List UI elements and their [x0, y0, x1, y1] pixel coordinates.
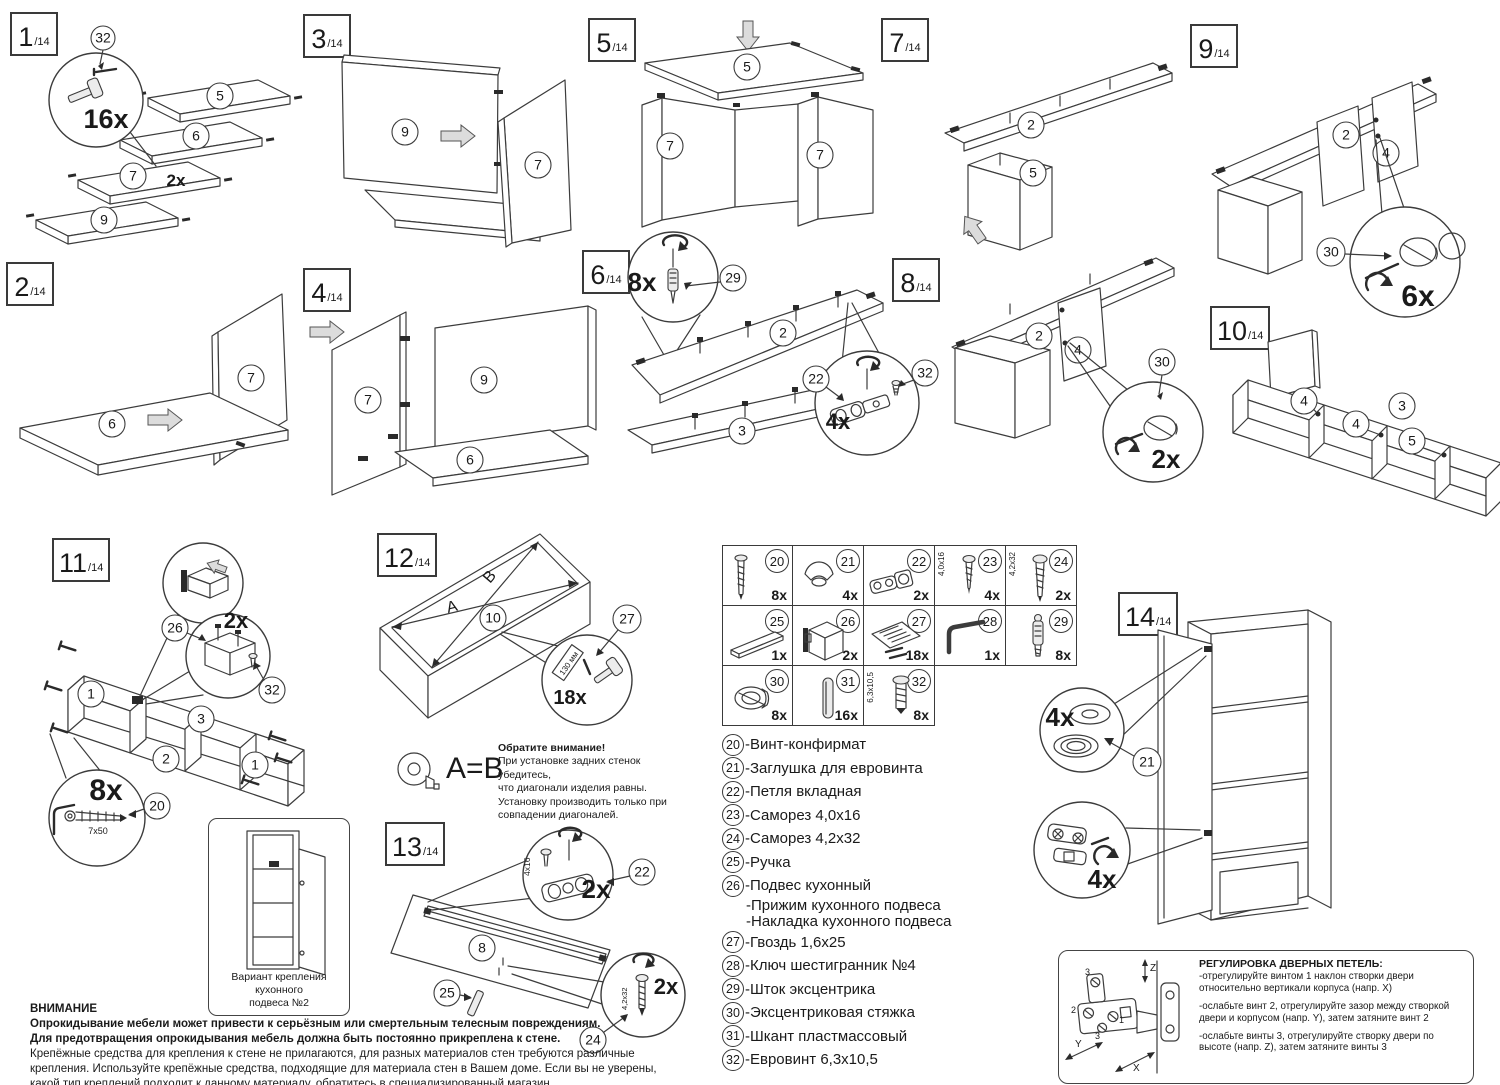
- parts-cell-25: 25 1x: [722, 605, 793, 666]
- screw-size-label: 4x16: [522, 857, 532, 876]
- axis-z-label: Z: [1150, 963, 1156, 974]
- callout-29: 29: [720, 265, 746, 291]
- screw-3-label: 3: [1085, 967, 1090, 977]
- svg-text:3: 3: [1398, 398, 1406, 414]
- legend-item: 21-Заглушка для евровинта: [722, 757, 1052, 781]
- quantity-label: 2x: [654, 974, 679, 999]
- part-qty: 8x: [771, 587, 787, 603]
- hinge-adjustment-title: РЕГУЛИРОВКА ДВЕРНЫХ ПЕТЕЛЬ:: [1199, 958, 1465, 971]
- part-circle-2: 2: [770, 320, 796, 346]
- step-4-drawing: 7 9 6: [300, 260, 585, 505]
- svg-text:3: 3: [738, 423, 746, 439]
- callout-32: 32: [259, 677, 285, 703]
- part-circle-7b: 7: [807, 142, 833, 168]
- quantity-label: 2x: [224, 608, 249, 633]
- part-circle-1b: 1: [242, 752, 268, 778]
- direction-arrow: [310, 321, 344, 343]
- door: [1158, 630, 1212, 924]
- svg-text:1: 1: [87, 686, 95, 702]
- panel-9: [342, 55, 503, 193]
- part-circle-7: 7: [525, 152, 551, 178]
- callout-21: 21: [1133, 748, 1161, 776]
- svg-text:27: 27: [619, 611, 635, 627]
- legend-item: 26-Подвес кухонный: [722, 874, 1052, 898]
- warning-title: ВНИМАНИЕ: [30, 1002, 670, 1017]
- legend-subitem: -Прижим кухонного подвеса: [746, 898, 1052, 915]
- svg-text:5: 5: [1408, 433, 1416, 449]
- svg-text:9: 9: [401, 124, 409, 140]
- step-12-drawing: A B 10 130 мм 18x 27: [370, 528, 670, 743]
- box: [955, 336, 1050, 438]
- step-2-drawing: 6 7: [0, 258, 300, 503]
- axis-x-label: X: [1133, 1063, 1140, 1074]
- panel-9: [435, 306, 596, 448]
- screw-size-label: 7x50: [88, 826, 108, 836]
- part-number-badge: 20: [765, 549, 789, 573]
- svg-text:10: 10: [485, 610, 501, 626]
- quantity-label: 4x: [1088, 864, 1117, 894]
- legend-item: 32-Евровинт 6,3х10,5: [722, 1048, 1052, 1072]
- legend-item: 25-Ручка: [722, 851, 1052, 875]
- part-circle-9: 9: [91, 207, 117, 233]
- panel-2: [945, 63, 1172, 151]
- leaning-panel: [1268, 330, 1320, 398]
- svg-text:2: 2: [162, 751, 170, 767]
- svg-text:30: 30: [1154, 354, 1170, 370]
- variant-cabinet-drawing: [209, 825, 347, 975]
- svg-text:2: 2: [1342, 127, 1350, 143]
- svg-text:9: 9: [100, 212, 108, 228]
- svg-text:2: 2: [1035, 328, 1043, 344]
- part-circle-4a: 4: [1291, 388, 1317, 414]
- svg-text:9: 9: [480, 372, 488, 388]
- direction-arrow: [737, 21, 759, 51]
- part-circle-5: 5: [734, 54, 760, 80]
- parts-legend: 20-Винт-конфирмат 21-Заглушка для еврови…: [722, 733, 1052, 1072]
- screw-1-label: 1: [1119, 1015, 1124, 1025]
- screw-3-label: 3: [1095, 1031, 1100, 1041]
- svg-text:22: 22: [634, 864, 650, 880]
- quantity-label: 8x: [89, 774, 123, 807]
- parts-cell-26: 26 2x: [792, 605, 864, 666]
- svg-text:21: 21: [1139, 754, 1155, 770]
- step-3-drawing: 9 7: [295, 12, 580, 262]
- part-circle-6: 6: [99, 411, 125, 437]
- callout-27: 27: [613, 605, 641, 633]
- part-circle-5: 5: [1020, 160, 1046, 186]
- step-10-drawing: 4 4 3 5: [1200, 302, 1500, 535]
- svg-text:32: 32: [264, 682, 280, 698]
- parts-cell-27: 27 18x: [863, 605, 935, 666]
- quantity-label: 4x: [826, 409, 851, 434]
- tape-measure-icon: [393, 748, 443, 794]
- callout-22: 22: [629, 859, 655, 885]
- part-circle-10: 10: [480, 605, 506, 631]
- svg-text:26: 26: [167, 620, 183, 636]
- part-circle-2: 2: [153, 746, 179, 772]
- part-circle-3: 3: [729, 418, 755, 444]
- svg-text:7: 7: [364, 392, 372, 408]
- parts-cell-31: 31 16x: [792, 665, 864, 726]
- svg-text:2: 2: [779, 325, 787, 341]
- hinge-icon: [868, 552, 916, 604]
- panel-6: [395, 430, 588, 486]
- callout-30: 30: [1149, 349, 1175, 375]
- confirmat-screw-glyph: [59, 642, 77, 655]
- step-1-drawing: 16x 32 5 6 7 2x 9: [8, 14, 300, 254]
- quantity-label: 2x: [582, 874, 611, 904]
- parts-cell-30: 30 8x: [722, 665, 793, 726]
- part-circle-5: 5: [1399, 428, 1425, 454]
- svg-text:20: 20: [149, 798, 165, 814]
- part-circle-2: 2: [1026, 323, 1052, 349]
- step-14-drawing: 4x 21 4x: [1040, 588, 1400, 938]
- part-circle-8: 8: [469, 935, 495, 961]
- euro-cap-icon: [797, 552, 841, 602]
- quantity-label: 8x: [628, 267, 657, 297]
- svg-text:1: 1: [251, 757, 259, 773]
- panel-7: [68, 162, 232, 204]
- legend-item: 30-Эксцентриковая стяжка: [722, 1001, 1052, 1025]
- legend-item: 29-Шток эксцентрика: [722, 978, 1052, 1002]
- step-9-drawing: 2 4 6x 30: [1190, 22, 1500, 340]
- svg-text:25: 25: [439, 985, 455, 1001]
- legend-item: 20-Винт-конфирмат: [722, 733, 1052, 757]
- quantity-label: 18x: [553, 687, 586, 709]
- part-circle-7: 7: [238, 365, 264, 391]
- svg-text:7: 7: [534, 157, 542, 173]
- part-circle-6: 6: [457, 447, 483, 473]
- confirmat-screw-glyph: [45, 682, 63, 695]
- note-title: Обратите внимание!: [498, 742, 678, 755]
- svg-text:5: 5: [1029, 165, 1037, 181]
- legend-item: 31-Шкант пластмассовый: [722, 1025, 1052, 1049]
- legend-item: 27-Гвоздь 1,6х25: [722, 931, 1052, 955]
- part-circle-9: 9: [392, 119, 418, 145]
- svg-text:6: 6: [466, 452, 474, 468]
- part-circle-7: 7: [120, 163, 146, 189]
- step-6-drawing: 2 3 8x 29 4x: [580, 233, 940, 520]
- parts-cell-24: 24 4,2x32 2x: [1005, 545, 1077, 606]
- diagonals-equal-label: A=B: [446, 752, 504, 786]
- box: [1218, 177, 1302, 274]
- callout-20: 20: [144, 793, 170, 819]
- svg-text:6: 6: [108, 416, 116, 432]
- parts-cell-21: 21 4x: [792, 545, 864, 606]
- magnifier-circle: [542, 635, 632, 725]
- svg-text:7: 7: [666, 138, 674, 154]
- legend-item: 28-Ключ шестигранник №4: [722, 954, 1052, 978]
- svg-text:7: 7: [816, 147, 824, 163]
- svg-text:29: 29: [725, 270, 741, 286]
- attention-note: Обратите внимание! При установке задних …: [498, 742, 678, 823]
- part-circle-7: 7: [657, 133, 683, 159]
- screw-2-label: 2: [1071, 1005, 1076, 1015]
- step-5-drawing: 5 7 7: [585, 15, 875, 250]
- confirmat-screw-glyph: [51, 724, 69, 737]
- callout-22: 22: [803, 366, 829, 392]
- callout-30: 30: [1317, 238, 1345, 266]
- parts-cell-29: 29 8x: [1005, 605, 1077, 666]
- svg-text:5: 5: [216, 88, 224, 104]
- svg-text:7: 7: [129, 168, 137, 184]
- quantity-label: 4x: [1046, 702, 1075, 732]
- callout-26: 26: [162, 615, 188, 641]
- part-circle-7: 7: [355, 387, 381, 413]
- quantity-label: 16x: [83, 104, 128, 134]
- cabinet: [1233, 380, 1500, 516]
- divider-4b: [1372, 82, 1418, 182]
- cabinet-box: [642, 92, 873, 227]
- quantity-label: 2x: [167, 171, 186, 190]
- screw-icon: [1028, 552, 1058, 606]
- part-circle-2: 2: [1018, 112, 1044, 138]
- part-circle-2: 2: [1333, 122, 1359, 148]
- part-circle-4b: 4: [1343, 411, 1369, 437]
- svg-text:3: 3: [197, 711, 205, 727]
- screw-icon: [957, 552, 987, 602]
- legend-subitem: -Накладка кухонного подвеса: [746, 914, 1052, 931]
- divider-4a: [1317, 106, 1364, 206]
- step-8-drawing: 2 4 2x 30: [890, 248, 1210, 508]
- svg-text:7: 7: [247, 370, 255, 386]
- parts-cell-23: 23 4,0x16 4x: [934, 545, 1006, 606]
- part-circle-3: 3: [188, 706, 214, 732]
- parts-cell-32: 32 6,3x10,5 8x: [863, 665, 935, 726]
- svg-text:8: 8: [478, 940, 486, 956]
- legend-item: 23-Саморез 4,0х16: [722, 804, 1052, 828]
- parts-cell-22: 22 2x: [863, 545, 935, 606]
- part-circle-3: 3: [1389, 393, 1415, 419]
- part-size-label: 4,0x16: [937, 552, 946, 576]
- quantity-label: 2x: [1152, 444, 1181, 474]
- callout-32: 32: [91, 26, 115, 50]
- svg-text:2: 2: [1027, 117, 1035, 133]
- svg-text:22: 22: [808, 371, 824, 387]
- svg-text:30: 30: [1323, 244, 1339, 260]
- part-circle-5: 5: [207, 83, 233, 109]
- mount-variant-box: Вариант крепления кухонного подвеса №2: [208, 818, 350, 1016]
- step-7-drawing: 2 5: [870, 15, 1200, 263]
- parts-cell-28: 28 1x: [934, 605, 1006, 666]
- svg-text:5: 5: [743, 59, 751, 75]
- svg-text:4: 4: [1352, 416, 1360, 432]
- hinge-adjustment-drawing: 3 2 1 3 Z Y X: [1061, 955, 1199, 1080]
- svg-text:6: 6: [192, 128, 200, 144]
- legend-item: 22-Петля вкладная: [722, 780, 1052, 804]
- part-circle-6: 6: [183, 123, 209, 149]
- parts-cell-20: 20 8x: [722, 545, 793, 606]
- confirmat-screw-icon: [727, 552, 767, 602]
- part-circle-9: 9: [471, 367, 497, 393]
- svg-text:4: 4: [1300, 393, 1308, 409]
- assembly-instruction-sheet: 1/14 2/14 3/14 4/14 5/14 6/14 7/14 8/14 …: [0, 0, 1500, 1085]
- svg-text:32: 32: [95, 30, 111, 46]
- legend-item: 24-Саморез 4,2х32: [722, 827, 1052, 851]
- axis-y-label: Y: [1075, 1039, 1082, 1050]
- part-circle-1a: 1: [78, 681, 104, 707]
- hinge-adjustment-box: 3 2 1 3 Z Y X РЕГУЛИРОВКА ДВЕРНЫХ ПЕТЕЛЬ…: [1058, 950, 1474, 1084]
- hinge-adjustment-text: РЕГУЛИРОВКА ДВЕРНЫХ ПЕТЕЛЬ: -отрегулируй…: [1199, 958, 1465, 1060]
- tip-over-warning: ВНИМАНИЕ Опрокидывание мебели может прив…: [30, 1002, 670, 1085]
- cam-rod-icon: [1024, 612, 1054, 668]
